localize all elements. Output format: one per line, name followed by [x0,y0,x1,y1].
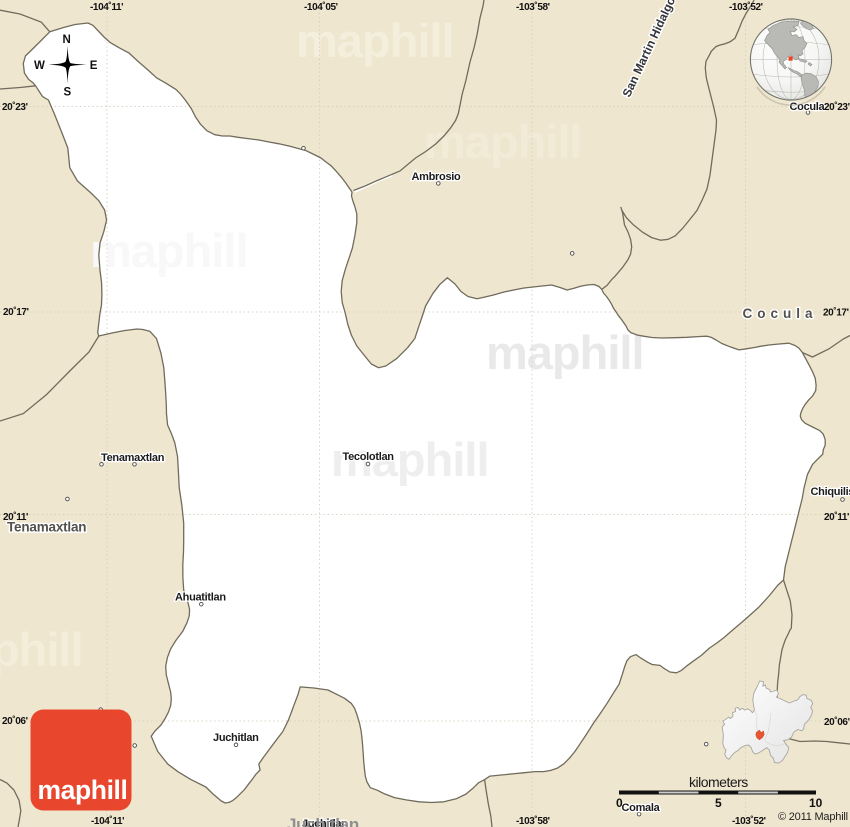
svg-text:20˚17': 20˚17' [823,307,849,319]
svg-text:kilometers: kilometers [689,774,748,790]
svg-text:Ahuatitlan: Ahuatitlan [175,592,226,604]
svg-text:-103˚58': -103˚58' [516,1,550,13]
svg-text:-103˚58': -103˚58' [516,815,550,827]
svg-text:Juchitlan: Juchitlan [287,815,359,827]
svg-text:20˚11': 20˚11' [824,511,849,523]
svg-text:Cocula: Cocula [790,101,826,113]
svg-text:-104˚11': -104˚11' [90,1,123,13]
svg-text:Cocula: Cocula [743,306,818,321]
svg-text:W: W [34,60,45,72]
svg-text:E: E [90,60,98,72]
svg-text:20˚17': 20˚17' [3,306,29,318]
svg-text:5: 5 [715,796,722,810]
svg-text:Tenamaxtlan: Tenamaxtlan [101,452,165,464]
svg-text:-104˚11': -104˚11' [91,815,124,827]
svg-text:Chiquilistlan: Chiquilistlan [811,486,850,498]
svg-text:Juchitlan: Juchitlan [213,732,259,744]
svg-text:© 2011 Maphill: © 2011 Maphill [778,811,848,823]
svg-text:maphill: maphill [38,775,128,805]
svg-text:maphill: maphill [0,623,83,676]
svg-text:S: S [64,87,72,99]
svg-text:20˚06': 20˚06' [2,715,28,727]
svg-text:20˚23': 20˚23' [824,101,850,113]
svg-text:0: 0 [616,796,623,810]
svg-text:10: 10 [809,796,823,810]
svg-text:maphill: maphill [486,326,644,379]
svg-text:20˚23': 20˚23' [2,101,28,113]
svg-text:Comala: Comala [622,802,661,814]
svg-text:20˚06': 20˚06' [824,716,850,728]
svg-text:maphill: maphill [90,224,248,277]
svg-text:maphill: maphill [424,115,582,168]
svg-text:20˚11': 20˚11' [3,511,28,523]
svg-text:N: N [63,34,71,46]
svg-text:Tecolotlan: Tecolotlan [343,451,395,463]
svg-text:-104˚05': -104˚05' [304,1,338,13]
svg-text:-103˚52': -103˚52' [732,815,766,827]
svg-text:Ambrosio: Ambrosio [412,171,462,183]
svg-text:-103˚52': -103˚52' [729,1,763,13]
